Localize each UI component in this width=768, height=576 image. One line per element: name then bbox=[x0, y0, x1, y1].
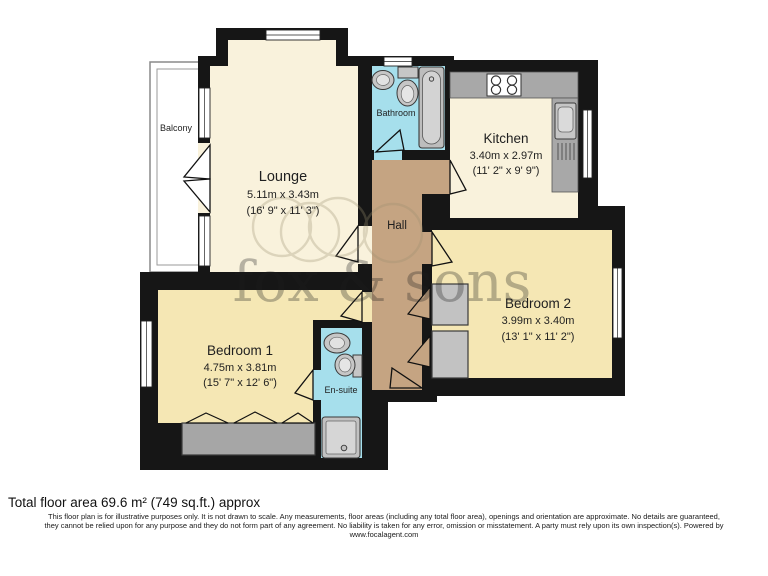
bedroom1-window bbox=[141, 321, 152, 387]
bathroom-basin-bowl bbox=[377, 75, 390, 86]
lounge-label: Lounge bbox=[259, 169, 307, 185]
ensuite-label: En-suite bbox=[324, 385, 357, 395]
bedroom1-label: Bedroom 1 bbox=[207, 343, 273, 358]
bathtub-inner bbox=[423, 71, 441, 144]
lounge-dim-imperial: (16' 9" x 11' 3") bbox=[247, 205, 320, 217]
lounge-bay-window bbox=[266, 30, 320, 40]
kitchen-dim-metric: 3.40m x 2.97m bbox=[470, 150, 543, 162]
bedroom2-dim-metric: 3.99m x 3.40m bbox=[502, 315, 575, 327]
kitchen-door-opening bbox=[422, 160, 450, 194]
ensuite-basin-bowl bbox=[330, 337, 345, 349]
bedroom2-label: Bedroom 2 bbox=[505, 296, 571, 311]
disclaimer-line-2: they cannot be relied upon for any purpo… bbox=[0, 521, 768, 530]
ensuite-toilet-bowl-inner bbox=[339, 358, 351, 372]
footer: Total floor area 69.6 m² (749 sq.ft.) ap… bbox=[0, 492, 768, 539]
bathroom-window bbox=[384, 57, 412, 66]
bedroom2-window bbox=[613, 268, 622, 338]
kitchen-label: Kitchen bbox=[483, 131, 528, 146]
bedroom2-cupboard-2 bbox=[432, 331, 468, 378]
bedroom1-wardrobe bbox=[182, 423, 315, 455]
lounge-dim-metric: 5.11m x 3.43m bbox=[247, 189, 319, 201]
disclaimer-line-1: This floor plan is for illustrative purp… bbox=[0, 512, 768, 521]
floorplan-canvas: fox & sons Lounge 5.11m x 3.43m (16' 9" … bbox=[0, 0, 768, 492]
balcony-label: Balcony bbox=[160, 123, 193, 133]
ensuite-door-opening bbox=[313, 370, 321, 400]
kitchen-dim-imperial: (11' 2" x 9' 9") bbox=[473, 165, 540, 177]
shower-drain-icon bbox=[341, 445, 347, 451]
floorplan-page: fox & sons Lounge 5.11m x 3.43m (16' 9" … bbox=[0, 0, 768, 576]
kitchen-window bbox=[583, 110, 592, 178]
toilet-cistern-icon bbox=[398, 67, 418, 78]
hall-label: Hall bbox=[387, 220, 407, 232]
lounge-balcony-window-2 bbox=[199, 216, 210, 266]
bedroom1-dim-metric: 4.75m x 3.81m bbox=[204, 362, 277, 374]
watermark-text: fox & sons bbox=[233, 250, 532, 315]
toilet-bowl-inner bbox=[401, 86, 414, 103]
kitchen-sink-bowl bbox=[558, 107, 573, 132]
bathroom-label: Bathroom bbox=[376, 108, 415, 118]
bedroom2-dim-imperial: (13' 1" x 11' 2") bbox=[502, 331, 575, 343]
total-floor-area: Total floor area 69.6 m² (749 sq.ft.) ap… bbox=[8, 495, 768, 510]
disclaimer-line-3: www.focalagent.com bbox=[0, 530, 768, 539]
bedroom1-dim-imperial: (15' 7" x 12' 6") bbox=[203, 377, 277, 389]
lounge-balcony-window-1 bbox=[199, 88, 210, 138]
lounge-bay-floor bbox=[228, 40, 336, 70]
disclaimer: This floor plan is for illustrative purp… bbox=[0, 512, 768, 539]
